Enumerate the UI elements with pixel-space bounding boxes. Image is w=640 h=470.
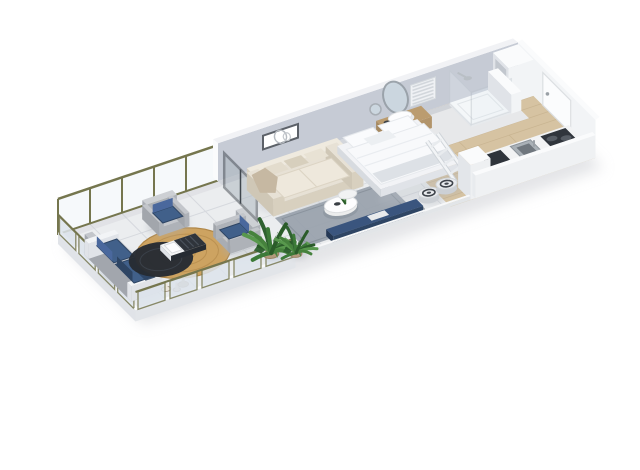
outdoor-armchair-b-arm-left-face (213, 223, 216, 240)
entry-door-handle (546, 92, 550, 96)
isometric-floorplan-svg (0, 0, 640, 470)
round-mirror (370, 104, 381, 115)
shower-half-wall-front-face (511, 91, 521, 113)
front-wall-right-left-face (472, 172, 475, 198)
outdoor-armchair-a-arm-front-face (185, 212, 190, 227)
outdoor-armchair-b-arm-left-face (228, 237, 231, 254)
back-wall-end-edge (213, 139, 218, 181)
floorplan-render (0, 0, 640, 470)
